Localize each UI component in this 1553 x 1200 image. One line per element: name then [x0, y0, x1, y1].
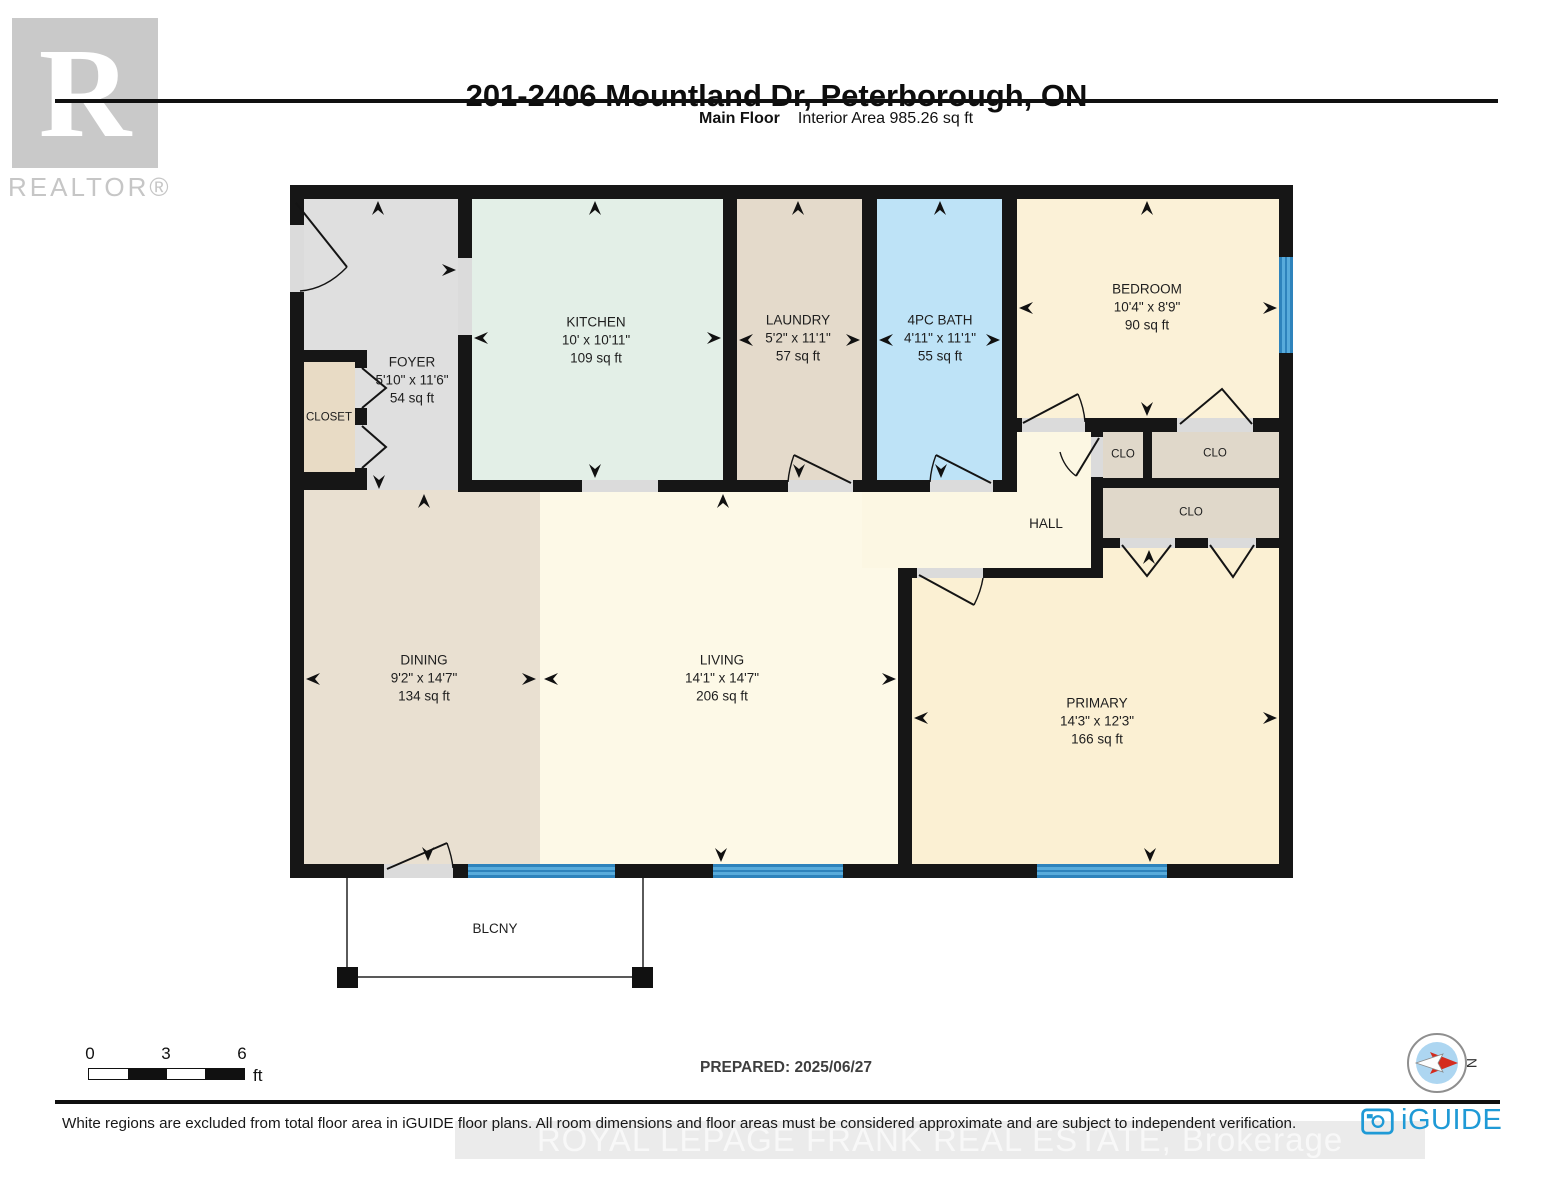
door-opening: [1120, 538, 1175, 548]
footer-divider: [55, 1100, 1500, 1104]
wall: [1279, 185, 1293, 257]
iguide-wordmark: iGUIDE: [1401, 1104, 1502, 1137]
iguide-icon: [1360, 1105, 1396, 1137]
door-opening: [582, 480, 658, 492]
door-opening: [458, 258, 472, 335]
wall: [1085, 418, 1177, 432]
room-label-laundry: LAUNDRY5'2" x 11'1"57 sq ft: [765, 311, 831, 364]
wall: [458, 335, 472, 492]
wall: [1167, 864, 1293, 878]
room-label-living: LIVING14'1" x 14'7"206 sq ft: [685, 651, 759, 704]
room-label-foyer: FOYER5'10" x 11'6"54 sq ft: [375, 353, 448, 406]
wall: [853, 480, 862, 492]
wall: [458, 480, 582, 492]
wall: [615, 864, 713, 878]
door-opening: [1022, 418, 1085, 432]
prepared-date: PREPARED: 2025/06/27: [700, 1059, 872, 1077]
door-opening: [788, 480, 853, 492]
room-label-bath: 4PC BATH4'11" x 11'1"55 sq ft: [904, 311, 976, 364]
wall: [843, 864, 1037, 878]
door-opening: [1208, 538, 1256, 548]
wall: [898, 568, 917, 578]
wall: [290, 864, 384, 878]
wall: [862, 185, 877, 492]
room-label-clo-top: CLO: [1203, 446, 1227, 461]
wall: [1256, 538, 1293, 548]
wall: [1143, 432, 1152, 478]
wall: [1091, 478, 1293, 488]
wall: [723, 185, 737, 492]
room-label-kitchen: KITCHEN10' x 10'11"109 sq ft: [562, 313, 630, 366]
room-label-balcony: BLCNY: [472, 920, 517, 938]
scale-tick-6: 6: [237, 1044, 246, 1064]
wall: [1253, 418, 1293, 432]
door-opening: [290, 225, 304, 292]
window: [1279, 257, 1293, 353]
room-label-closet: CLOSET: [306, 410, 352, 425]
door-opening: [384, 864, 453, 878]
walls-layer: [0, 0, 1553, 1200]
wall: [1002, 185, 1017, 492]
wall: [355, 350, 367, 368]
scale-tick-3: 3: [161, 1044, 170, 1064]
door-opening: [1177, 418, 1253, 432]
window: [468, 864, 615, 878]
wall: [355, 468, 367, 482]
scale-bar-segments: [88, 1068, 245, 1080]
wall: [290, 185, 304, 225]
room-label-clo-bottom: CLO: [1179, 505, 1203, 520]
room-label-primary: PRIMARY14'3" x 12'3"166 sq ft: [1060, 694, 1134, 747]
wall: [1091, 477, 1103, 578]
room-label-bedroom: BEDROOM10'4" x 8'9"90 sq ft: [1112, 280, 1182, 333]
room-label-dining: DINING9'2" x 14'7"134 sq ft: [391, 651, 458, 704]
iguide-logo: iGUIDE: [1360, 1104, 1502, 1137]
scale-tick-0: 0: [85, 1044, 94, 1064]
door-opening: [930, 480, 993, 492]
wall: [983, 568, 1103, 578]
wall: [723, 480, 788, 492]
floor-plan-page: R REALTOR® 201-2406 Mountland Dr, Peterb…: [0, 0, 1553, 1200]
door-opening: [917, 568, 983, 578]
wall: [458, 185, 472, 258]
wall: [290, 185, 1293, 199]
wall: [355, 408, 367, 425]
footer-disclaimer: White regions are excluded from total fl…: [62, 1115, 1296, 1132]
wall: [1175, 538, 1208, 548]
wall: [898, 568, 912, 878]
floor-plan: N FOYER5'10" x 11'6"54 sq ft CLOSET KITC…: [0, 0, 1553, 1200]
scale-unit: ft: [253, 1066, 262, 1086]
wall: [453, 864, 468, 878]
wall: [1091, 538, 1120, 548]
wall: [862, 480, 930, 492]
wall: [290, 292, 304, 878]
wall: [658, 480, 723, 492]
window: [1037, 864, 1167, 878]
room-label-hall: HALL: [1029, 515, 1063, 533]
window: [713, 864, 843, 878]
door-opening: [1091, 437, 1103, 477]
wall: [993, 480, 1017, 492]
room-label-clo-small: CLO: [1111, 447, 1135, 462]
